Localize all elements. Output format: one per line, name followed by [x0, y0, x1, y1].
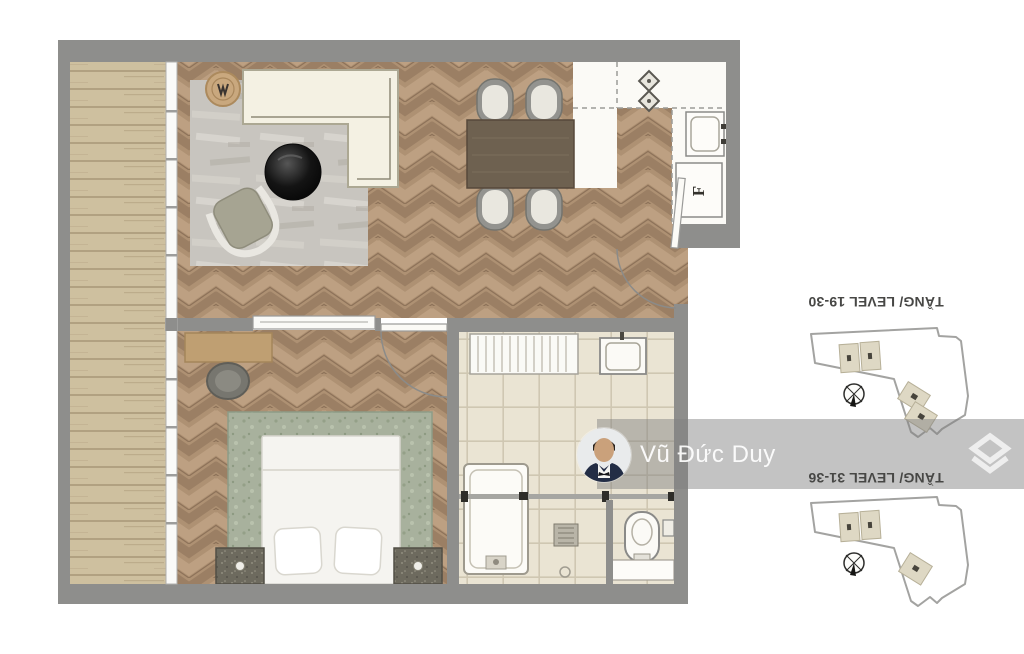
balcony-floor: [70, 62, 166, 584]
pillow: [334, 527, 382, 575]
compass-icon: [844, 384, 864, 407]
wc-shelf: [612, 560, 674, 580]
window-band: [166, 62, 177, 584]
closet: [470, 334, 578, 374]
key-plan-label-31-36: TẦNG/ LEVEL 31-36: [788, 468, 964, 488]
sink-unit: [686, 112, 727, 156]
bathtub: [464, 464, 528, 574]
dining-table: [467, 120, 574, 188]
floor-plan: F: [0, 0, 1024, 654]
watermark-avatar: [577, 428, 631, 482]
side-pouf: [206, 72, 240, 106]
brand-logo-icon: [966, 430, 1014, 478]
bath-sink: [600, 332, 646, 374]
key-plan-label-19-30: TẦNG/ LEVEL 19-30: [788, 292, 964, 312]
living-room: [190, 70, 398, 266]
compass-icon: [844, 553, 864, 576]
coffee-table: [265, 144, 321, 200]
apartment-plan: F: [58, 40, 740, 604]
sliding-door: [253, 316, 375, 329]
desk: [185, 333, 272, 362]
fridge-label: F: [689, 186, 708, 196]
pillow: [274, 527, 322, 575]
watermark-name: Vũ Đức Duy: [640, 441, 900, 471]
key-plan-31-36: [811, 497, 968, 606]
entry-doorway-floor: [674, 248, 688, 304]
